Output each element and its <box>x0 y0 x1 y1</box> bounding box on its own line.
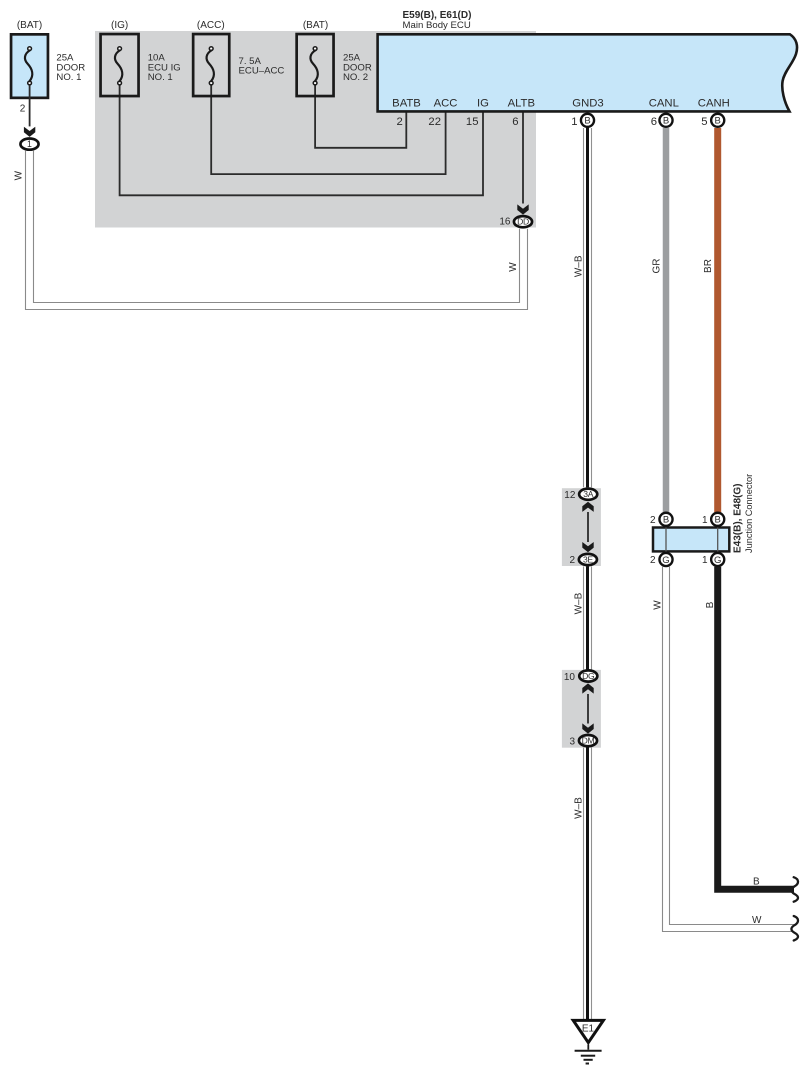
svg-text:B: B <box>663 515 669 526</box>
svg-text:15: 15 <box>466 116 479 128</box>
svg-text:BR: BR <box>703 259 714 273</box>
svg-text:B: B <box>715 515 721 526</box>
svg-text:DM: DM <box>582 736 595 746</box>
svg-text:NO. 1: NO. 1 <box>56 72 81 83</box>
svg-text:3A: 3A <box>583 489 593 499</box>
svg-text:16: 16 <box>499 216 511 227</box>
svg-text:NO. 1: NO. 1 <box>148 72 173 83</box>
svg-text:NO. 2: NO. 2 <box>343 72 368 83</box>
svg-text:Main Body ECU: Main Body ECU <box>403 20 471 31</box>
svg-text:B: B <box>663 116 669 127</box>
svg-text:W: W <box>508 262 519 272</box>
svg-text:3E: 3E <box>583 555 593 565</box>
svg-text:W: W <box>652 600 663 610</box>
svg-text:DG: DG <box>582 671 595 681</box>
svg-text:2: 2 <box>20 103 26 114</box>
svg-text:W–B: W–B <box>574 255 585 277</box>
svg-text:(BAT): (BAT) <box>17 20 42 31</box>
svg-text:DD: DD <box>517 217 529 227</box>
svg-text:(BAT): (BAT) <box>303 20 328 31</box>
svg-text:B: B <box>753 877 760 888</box>
svg-text:CANH: CANH <box>698 97 730 109</box>
svg-text:(IG): (IG) <box>111 20 128 31</box>
svg-text:ACC: ACC <box>434 97 458 109</box>
svg-text:G: G <box>662 555 669 566</box>
svg-text:GND3: GND3 <box>572 97 603 109</box>
svg-text:Junction Connector: Junction Connector <box>744 474 754 553</box>
svg-text:E1: E1 <box>582 1024 595 1035</box>
svg-text:2: 2 <box>650 515 656 526</box>
svg-text:5: 5 <box>701 116 707 128</box>
svg-text:2: 2 <box>650 555 656 566</box>
svg-text:G: G <box>714 555 721 566</box>
svg-text:(ACC): (ACC) <box>197 20 225 31</box>
svg-text:1: 1 <box>571 116 577 128</box>
svg-text:6: 6 <box>512 116 518 128</box>
svg-text:ALTB: ALTB <box>508 97 535 109</box>
svg-text:2: 2 <box>397 116 403 128</box>
svg-text:BATB: BATB <box>392 97 421 109</box>
svg-text:W–B: W–B <box>574 592 585 614</box>
svg-text:W: W <box>752 915 762 926</box>
svg-text:W: W <box>14 170 25 180</box>
svg-text:10: 10 <box>564 672 576 683</box>
svg-text:1: 1 <box>27 139 32 149</box>
svg-text:12: 12 <box>564 490 576 501</box>
svg-text:2: 2 <box>569 555 575 566</box>
svg-text:1: 1 <box>702 515 708 526</box>
svg-text:B: B <box>715 116 721 127</box>
svg-text:CANL: CANL <box>649 97 679 109</box>
svg-text:22: 22 <box>428 116 441 128</box>
svg-text:1: 1 <box>702 555 708 566</box>
svg-text:W–B: W–B <box>574 797 585 819</box>
svg-text:IG: IG <box>477 97 489 109</box>
svg-text:B: B <box>584 116 590 127</box>
svg-text:6: 6 <box>651 116 657 128</box>
svg-text:3: 3 <box>569 737 575 748</box>
svg-text:GR: GR <box>652 259 663 274</box>
svg-text:ECU–ACC: ECU–ACC <box>239 66 285 77</box>
svg-text:E43(B), E48(G): E43(B), E48(G) <box>733 484 744 553</box>
